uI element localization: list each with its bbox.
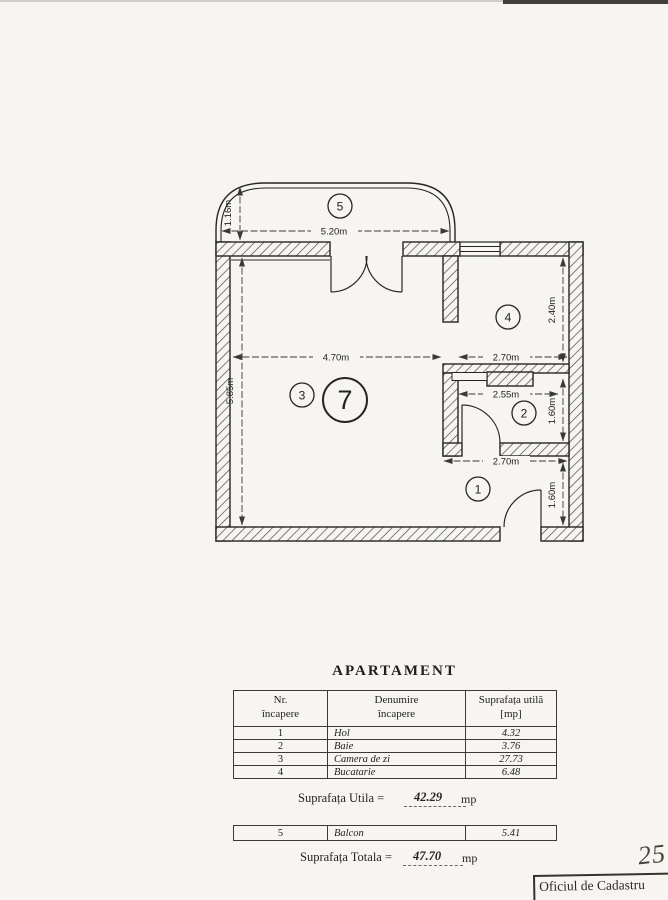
suprafata-utila-value: 42.29 [414, 790, 442, 805]
dimension-label-kitchen-width: 2.70m [493, 353, 519, 364]
dimension-label-hall-width: 2.70m [493, 457, 519, 468]
suprafata-totala-label: Suprafața Totala = [300, 850, 392, 865]
table-row: 4 Bucatarie 6.48 [234, 766, 557, 779]
wall-notch [452, 373, 487, 381]
dimension-label-kitchen-height: 2.40m [547, 297, 558, 323]
cadastru-stamp: Oficiul de Cadastru [533, 872, 668, 900]
cell-name: Bucatarie [328, 766, 466, 779]
header-denumire-line1: Denumire [375, 694, 419, 706]
dimension-label-backgrounds [311, 226, 530, 466]
dimension-label-balcony-width: 5.20m [321, 227, 347, 238]
balcony-table: 5 Balcon 5.41 [233, 825, 557, 841]
header-nr-line2: încapere [262, 708, 299, 720]
floor-plan-drawing: 5.20m 1.16m 5.85m 4.70m 2.70m 2.40m 2.55… [0, 0, 668, 630]
bathroom-door [462, 405, 500, 443]
suprafata-totala-unit: mp [462, 851, 477, 866]
apartment-number: 7 [337, 385, 352, 415]
room-number-balcony: 5 [337, 200, 344, 214]
header-denumire: Denumire încapere [328, 691, 466, 727]
room-number-hall: 1 [475, 483, 482, 497]
window-symbol [460, 242, 500, 256]
wall-bottom-left [216, 527, 500, 541]
table-row: 3 Camera de zi 27.73 [234, 753, 557, 766]
table-row: 1 Hol 4.32 [234, 727, 557, 740]
table-row: 2 Baie 3.76 [234, 740, 557, 753]
cell-area: 5.41 [466, 826, 557, 841]
entrance-door [504, 490, 541, 527]
cell-area: 27.73 [466, 753, 557, 766]
wall-stub-kitchen [443, 256, 458, 322]
table-title: APARTAMENT [233, 663, 556, 680]
wall-bottom-right [541, 527, 583, 541]
wall-bath-bottom-left [443, 443, 462, 456]
wall-duct [487, 372, 533, 386]
wall-right [569, 242, 583, 541]
cell-nr: 4 [234, 766, 328, 779]
door-arc [366, 256, 402, 292]
wall-top-middle [403, 242, 460, 256]
header-nr-line1: Nr. [274, 694, 288, 706]
cell-nr: 2 [234, 740, 328, 753]
handwritten-page-number: 25 [637, 839, 668, 872]
dimension-label-balcony-depth: 1.16m [223, 200, 234, 226]
dimension-label-hall-height: 1.60m [547, 482, 558, 508]
suprafata-utila-unit: mp [461, 792, 476, 807]
header-nr: Nr. încapere [234, 691, 328, 727]
header-suprafata-line1: Suprafața utilă [479, 694, 543, 706]
dimension-label-bathroom-width: 2.55m [493, 390, 519, 401]
header-suprafata: Suprafața utilă [mp] [466, 691, 557, 727]
room-number-living: 3 [299, 389, 306, 403]
dimension-label-living-height: 5.85m [225, 378, 236, 404]
dimension-label-bathroom-height: 1.60m [547, 398, 558, 424]
totala-underline [403, 865, 463, 866]
room-number-kitchen: 4 [505, 311, 512, 325]
cell-nr: 5 [234, 826, 328, 841]
balcony-double-door [331, 256, 402, 292]
dimension-label-living-width: 4.70m [323, 353, 349, 364]
cell-nr: 1 [234, 727, 328, 740]
scanned-floor-plan-page: 5.20m 1.16m 5.85m 4.70m 2.70m 2.40m 2.55… [0, 0, 668, 900]
suprafata-totala-value: 47.70 [413, 849, 441, 864]
cell-area: 6.48 [466, 766, 557, 779]
cell-name: Balcon [328, 826, 466, 841]
room-number-bathroom: 2 [521, 407, 528, 421]
wall-bath-bottom-right [500, 443, 569, 456]
area-table: Nr. încapere Denumire încapere Suprafața… [233, 690, 557, 779]
cell-area: 3.76 [466, 740, 557, 753]
cell-name: Baie [328, 740, 466, 753]
suprafata-utila-label: Suprafața Utila = [298, 791, 384, 806]
door-arc [331, 256, 367, 292]
wall-top-left [216, 242, 330, 256]
table-row: 5 Balcon 5.41 [234, 826, 557, 841]
utila-underline [404, 806, 466, 807]
header-suprafata-line2: [mp] [500, 708, 521, 720]
header-denumire-line2: încapere [378, 708, 415, 720]
cell-name: Camera de zi [328, 753, 466, 766]
cell-area: 4.32 [466, 727, 557, 740]
door-arc [504, 490, 541, 527]
cell-name: Hol [328, 727, 466, 740]
cell-nr: 3 [234, 753, 328, 766]
door-arc [462, 405, 500, 443]
